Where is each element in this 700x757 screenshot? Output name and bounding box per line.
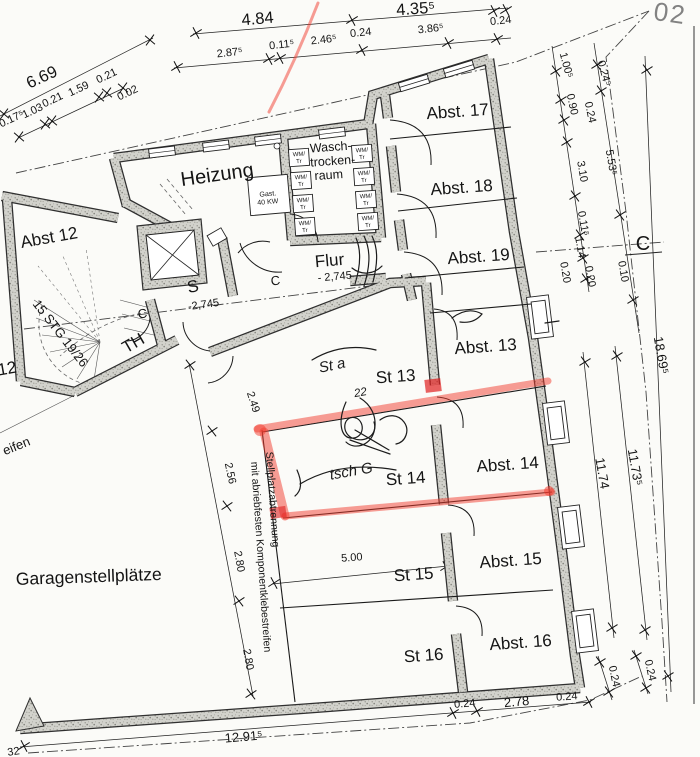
dim-0-24b: 0.24 bbox=[489, 14, 512, 28]
wm-6b: Tr bbox=[361, 178, 367, 184]
wm-5b: Tr bbox=[359, 155, 365, 161]
hand-st-a: St a bbox=[317, 355, 347, 377]
floor-plan-sheet: 6.690.17⁵1.030.211.590.210.024.844.35⁵2.… bbox=[0, 0, 700, 757]
dim-2-56: 2.56 bbox=[222, 462, 238, 485]
dim-2-80b: 2.80 bbox=[240, 648, 256, 671]
room-st-15: St 15 bbox=[393, 564, 434, 586]
stair-note: 15 STG 19/26 bbox=[30, 297, 92, 370]
dim-0-24a: 0.24 bbox=[349, 26, 372, 40]
wm-4a: WM/ bbox=[299, 221, 312, 228]
edge-32: 32 bbox=[7, 745, 21, 757]
room-wasch-3: raum bbox=[314, 167, 343, 183]
elevator-shaft bbox=[137, 219, 227, 290]
dim-2-49: 2.49 bbox=[244, 390, 262, 414]
wm-5a: WM/ bbox=[356, 148, 369, 155]
wm-4b: Tr bbox=[302, 228, 308, 234]
room-st-16: St 16 bbox=[403, 645, 444, 667]
dim-0-24e: 0.24 bbox=[642, 659, 658, 682]
wm-7b: Tr bbox=[363, 201, 369, 207]
room-abst-19: Abst. 19 bbox=[447, 245, 511, 268]
dim-0-20a: 0.20 bbox=[557, 261, 573, 284]
dim-12-915: 12.91⁵ bbox=[224, 727, 263, 745]
room-abst-15: Abst. 15 bbox=[479, 549, 543, 572]
dim-2-875: 2.87⁵ bbox=[216, 46, 243, 61]
dim-2-465: 2.46⁵ bbox=[310, 33, 337, 48]
section-c-mid2: C bbox=[270, 272, 281, 288]
dim-0-245: 0.24⁵ bbox=[595, 59, 613, 87]
wm-8a: WM/ bbox=[362, 216, 375, 223]
dim-4-84: 4.84 bbox=[241, 9, 275, 30]
sheet-02: 02 bbox=[652, 0, 689, 30]
dim-0-21b: 0.21 bbox=[94, 66, 118, 86]
dim-18-695: 18.69⁵ bbox=[651, 335, 672, 375]
dim-4-355: 4.35⁵ bbox=[396, 0, 436, 19]
area-garage: Garagenstellplätze bbox=[15, 564, 162, 589]
room-abst-17: Abst. 17 bbox=[426, 100, 490, 123]
floor-plan-svg: 6.690.17⁵1.030.211.590.210.024.844.35⁵2.… bbox=[0, 0, 700, 757]
level-flur: - 2,745 bbox=[317, 270, 352, 285]
dim-0-24c: 0.24 bbox=[582, 101, 598, 124]
wm-1b: Tr bbox=[296, 159, 302, 165]
section-c-mid1: C bbox=[137, 305, 148, 321]
wm-7a: WM/ bbox=[360, 194, 373, 201]
room-abst-16: Abst. 16 bbox=[489, 631, 553, 654]
edge-eifen: eifen bbox=[0, 434, 32, 458]
dim-3-865: 3.86⁵ bbox=[417, 22, 444, 37]
dim-11-735: 11.73⁵ bbox=[625, 448, 646, 487]
dim-0-24f: 0.24 bbox=[454, 697, 476, 711]
wm-6a: WM/ bbox=[358, 171, 371, 178]
dim-0-10: 0.10 bbox=[615, 260, 631, 283]
dim-0-115b: 0.11⁵ bbox=[575, 210, 591, 237]
room-heizung: Heizung bbox=[179, 159, 255, 191]
wm-3b: Tr bbox=[300, 205, 306, 211]
wm-3a: WM/ bbox=[297, 198, 310, 205]
dim-1-03: 1.03 bbox=[20, 101, 44, 121]
dim-0-20b: 0.20 bbox=[582, 265, 598, 288]
dim-1-59: 1.59 bbox=[66, 79, 90, 99]
hand-22: 22 bbox=[352, 386, 368, 400]
dim-5-535: 5.53⁵ bbox=[603, 149, 619, 177]
dim-0-115: 0.11⁵ bbox=[269, 38, 295, 53]
dim-0-24g: 0.24 bbox=[556, 690, 578, 703]
dim-3-10: 3.10 bbox=[574, 160, 590, 183]
dim-0-02: 0.02 bbox=[115, 83, 139, 103]
room-flur: Flur bbox=[314, 250, 345, 272]
room-st-14: St 14 bbox=[385, 468, 426, 490]
wm-2a: WM/ bbox=[295, 175, 308, 182]
room-abst-14: Abst. 14 bbox=[476, 453, 540, 476]
dim-5-00: 5.00 bbox=[341, 551, 363, 564]
wm-1a: WM/ bbox=[293, 152, 306, 159]
wall-end-cap bbox=[16, 698, 44, 731]
equip-gas-1: Gast. bbox=[259, 190, 276, 198]
dim-1-14: 1.14 bbox=[572, 236, 588, 259]
dim-2-80a: 2.80 bbox=[231, 550, 247, 573]
room-st-13: St 13 bbox=[375, 366, 416, 388]
wm-8b: Tr bbox=[365, 223, 371, 229]
level-s: -2,745 bbox=[187, 297, 220, 313]
hand-tsch-g: tsch G bbox=[328, 459, 374, 483]
wm-2b: Tr bbox=[298, 182, 304, 188]
room-abst-13: Abst. 13 bbox=[454, 335, 518, 358]
room-abst-18: Abst. 18 bbox=[430, 176, 494, 199]
dim-11-74: 11.74 bbox=[592, 456, 612, 490]
room-abst-12: Abst 12 bbox=[19, 223, 79, 252]
dim-2-78: 2.78 bbox=[503, 693, 530, 710]
dim-0-24d: 0.24 bbox=[606, 665, 622, 688]
section-c-right: C bbox=[636, 233, 650, 255]
dim-0-90: 0.90 bbox=[564, 93, 580, 116]
